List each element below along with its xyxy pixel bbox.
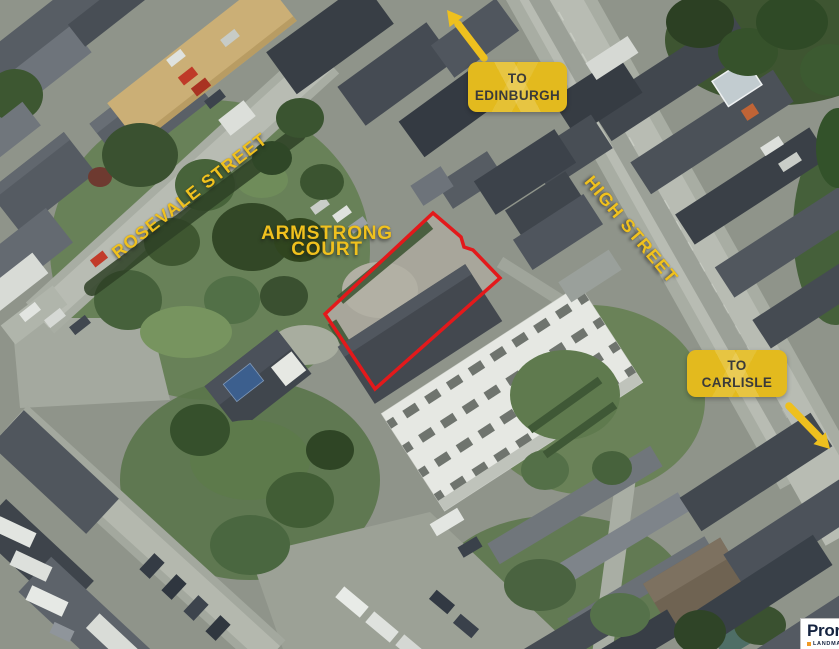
landmark-subbrand-text: LANDMARK <box>813 641 839 647</box>
to-edinburgh-line1: TO <box>508 70 527 87</box>
to-carlisle-badge: TO CARLISLE <box>687 350 787 397</box>
site-label-line2: COURT <box>261 242 393 258</box>
to-carlisle-line2: CARLISLE <box>702 374 773 391</box>
landmark-bullet-icon <box>807 642 811 646</box>
site-location-map: ROSEVALE STREET HIGH STREET ARMSTRONG CO… <box>0 0 839 649</box>
promap-brand-text: Promap <box>807 621 839 640</box>
promap-logo: Promap LANDMARK <box>800 618 839 649</box>
to-edinburgh-badge: TO EDINBURGH <box>468 62 567 112</box>
to-carlisle-line1: TO <box>727 357 746 374</box>
aerial-photo <box>0 0 839 649</box>
site-label-armstrong-court: ARMSTRONG COURT <box>261 226 393 258</box>
to-edinburgh-line2: EDINBURGH <box>475 87 560 104</box>
